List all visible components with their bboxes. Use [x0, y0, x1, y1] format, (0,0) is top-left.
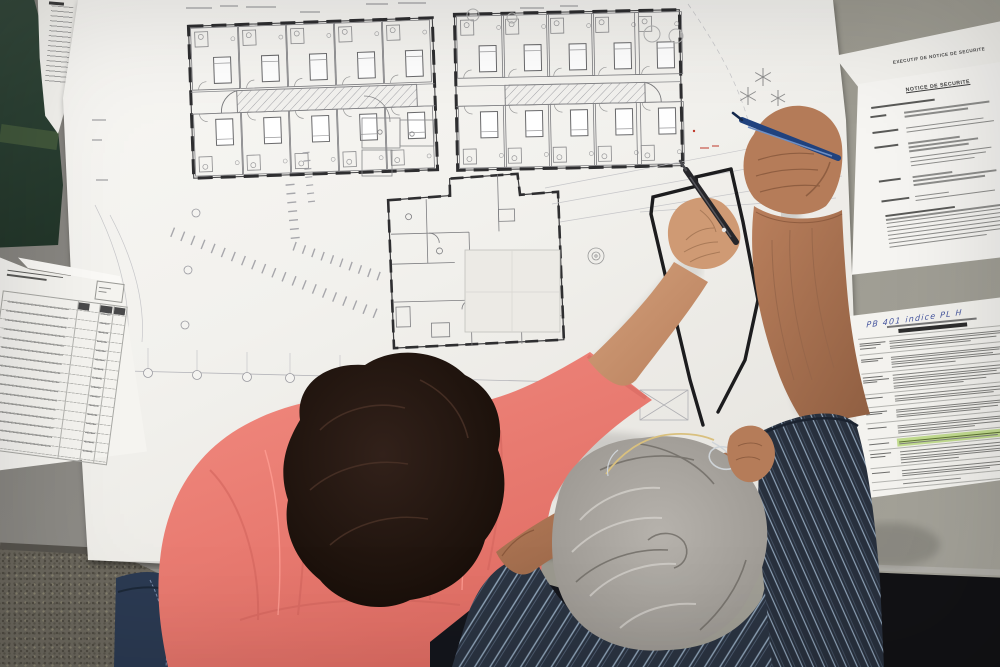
- pen-clip-dot: [722, 228, 726, 232]
- woman-forearm: [588, 262, 708, 386]
- man: [452, 106, 884, 667]
- man-right-sleeve: [758, 413, 884, 667]
- man-right-forearm: [752, 206, 870, 426]
- people-layer: [0, 0, 1000, 667]
- photo-scene: EXECUTIF DE NOTICE DE SECURITE NOTICE DE…: [0, 0, 1000, 667]
